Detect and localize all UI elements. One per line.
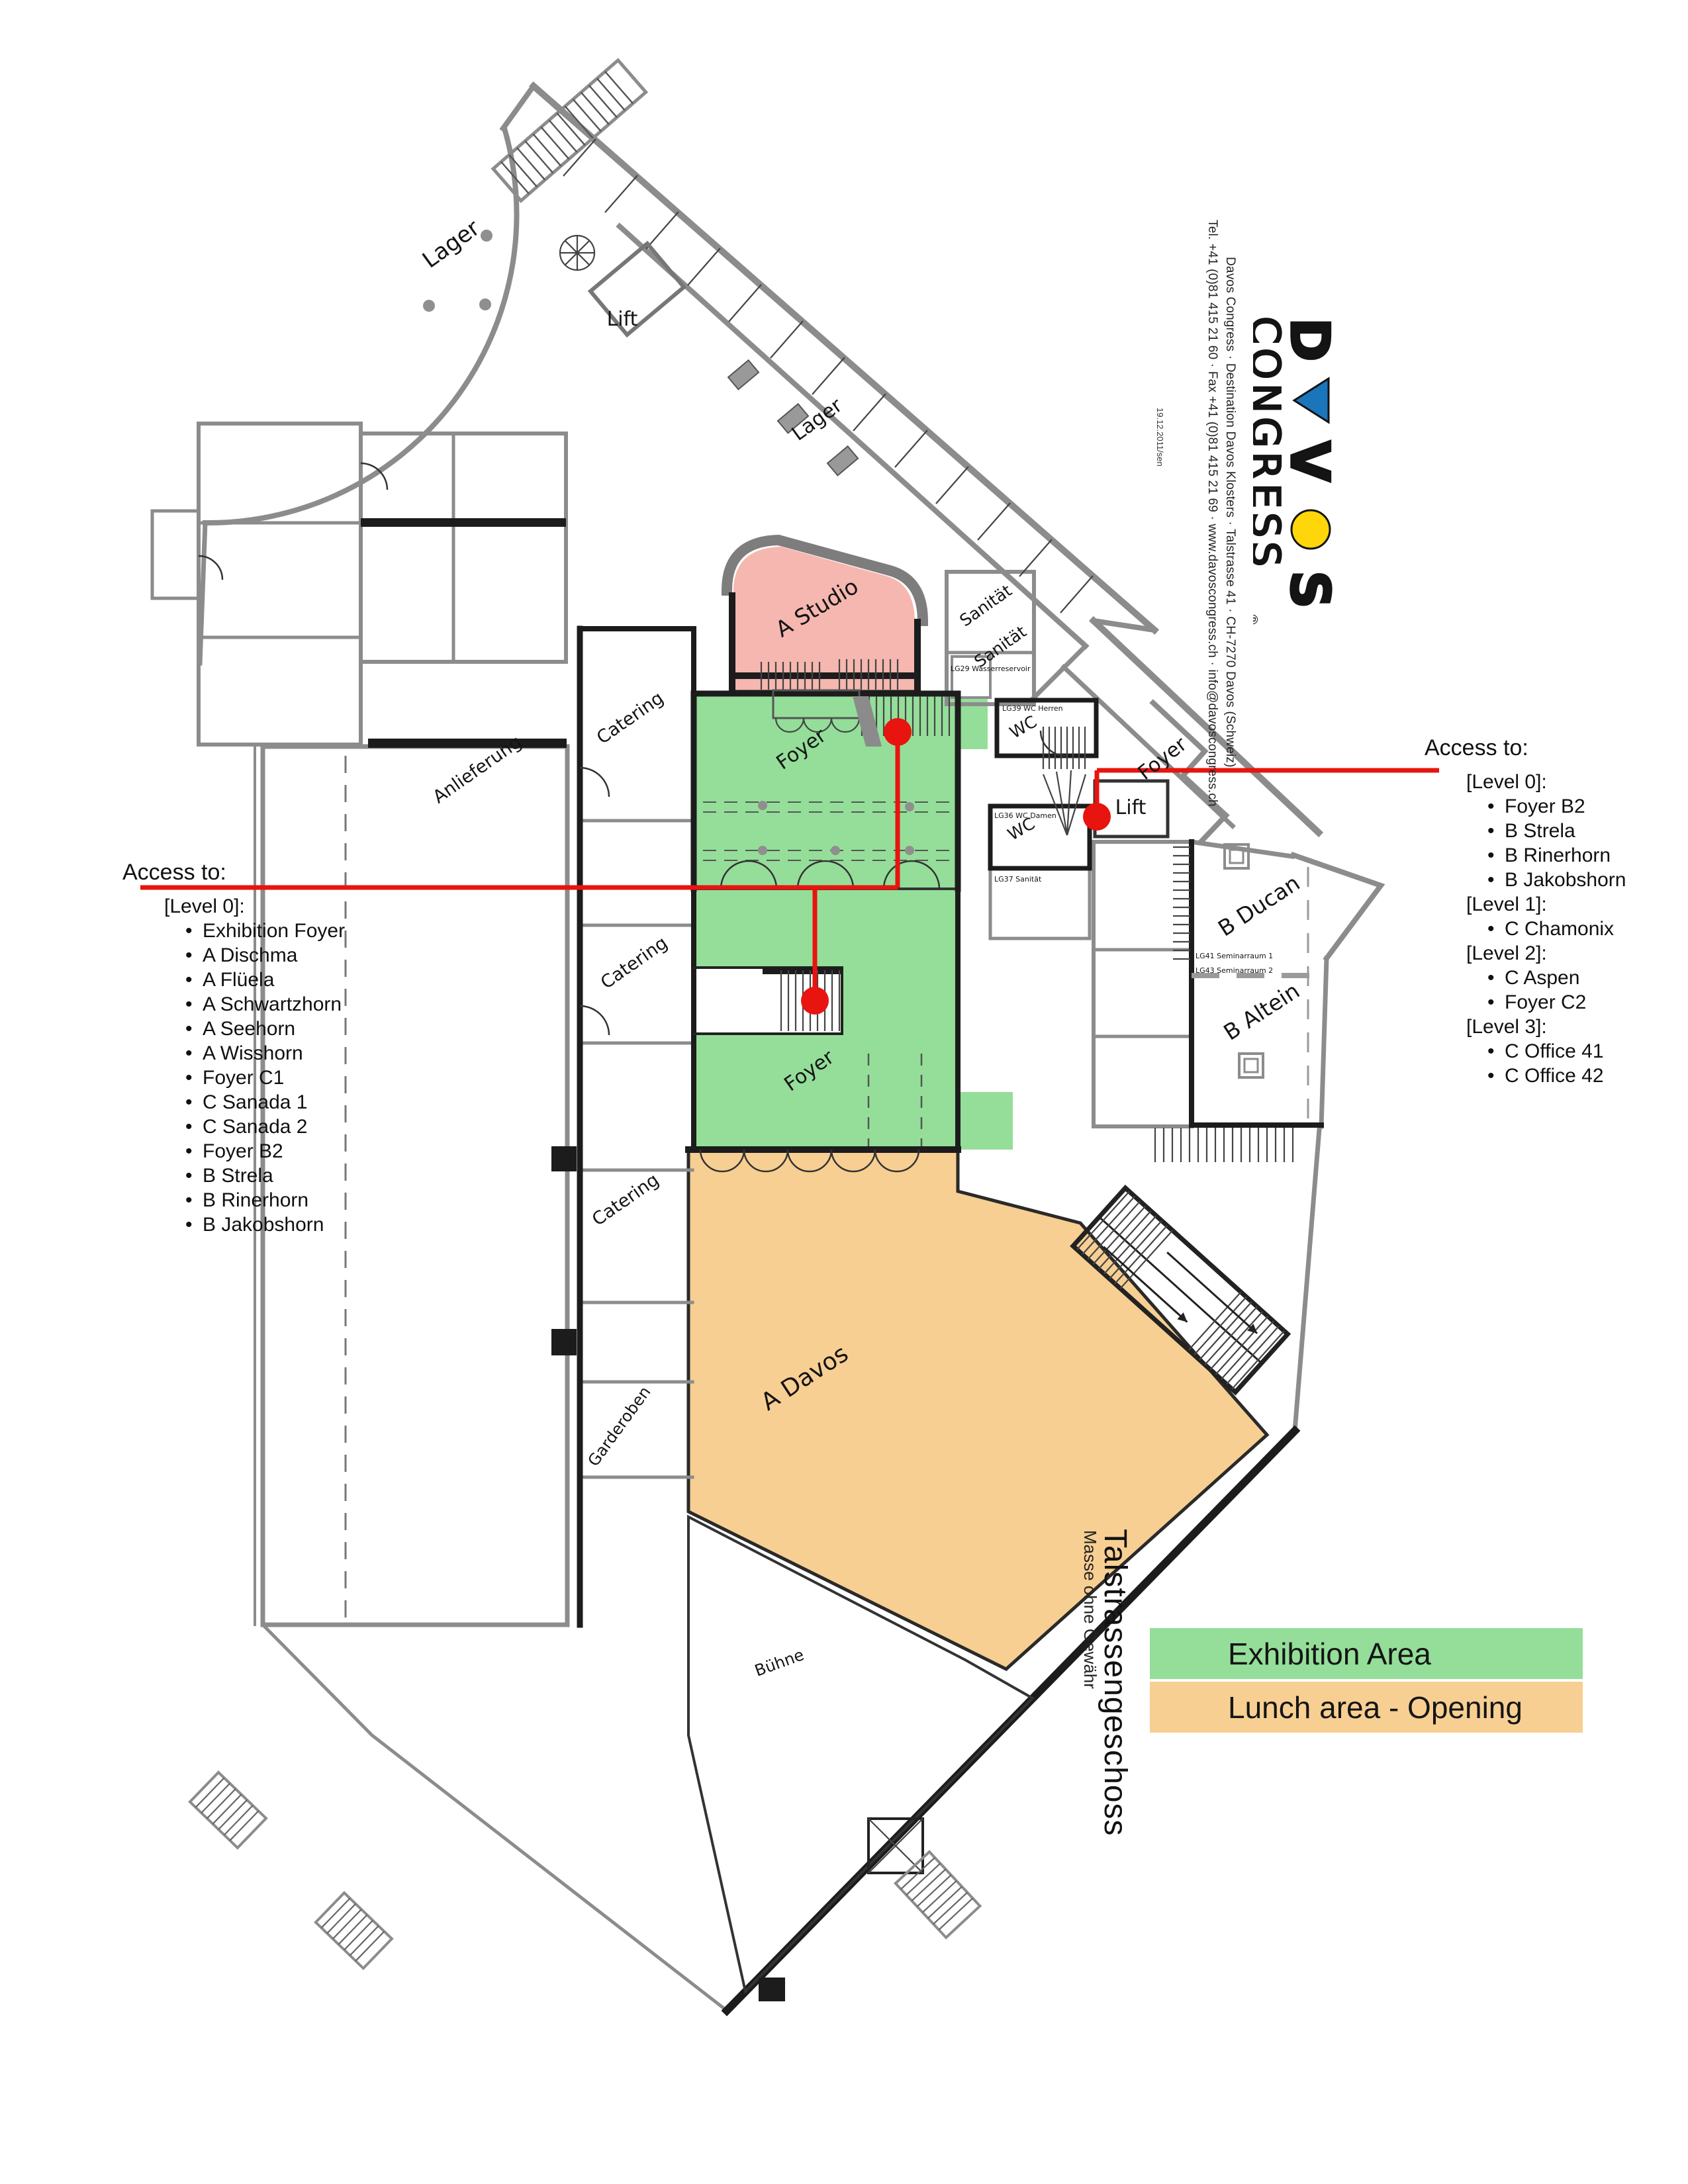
bullet-icon: • [185, 1212, 203, 1237]
bullet-icon: • [185, 1139, 203, 1163]
access-item: •A Dischma [185, 943, 400, 968]
label-lager-top: Lager [418, 215, 485, 274]
access-item-label: C Aspen [1505, 967, 1579, 989]
access-item-label: B Strela [203, 1165, 273, 1187]
access-item: •Foyer B2 [185, 1139, 400, 1163]
micro-label: LG39 WC Herren [1002, 704, 1063, 713]
bullet-icon: • [1487, 819, 1505, 843]
access-item-label: B Jakobshorn [203, 1214, 324, 1236]
bullet-icon: • [1487, 868, 1505, 892]
access-item-label: C Chamonix [1505, 918, 1614, 940]
bullet-icon: • [185, 1163, 203, 1188]
access-item: •Foyer C1 [185, 1066, 400, 1090]
bullet-icon: • [185, 1017, 203, 1041]
davos-congress-logo: D V S CONGRESS ® [1253, 316, 1333, 627]
access-item-label: Exhibition Foyer [203, 920, 345, 942]
access-item-label: A Dischma [203, 944, 297, 966]
stair-bank-top [493, 60, 646, 201]
access-item-label: C Sanada 1 [203, 1091, 307, 1113]
access-item: •B Jakobshorn [185, 1212, 400, 1237]
access-item: •B Strela [1487, 819, 1676, 843]
access-marker-lift [1083, 803, 1111, 831]
access-list-right: Access to: [Level 0]:•Foyer B2•B Strela•… [1425, 736, 1676, 1088]
access-item-label: A Schwartzhorn [203, 993, 342, 1015]
bullet-icon: • [1487, 794, 1505, 819]
legend: Exhibition AreaLunch area - Opening [1150, 1628, 1583, 1735]
legend-item-label: Exhibition Area [1150, 1636, 1431, 1672]
label-buehne: Bühne [752, 1645, 806, 1680]
bullet-icon: • [1487, 843, 1505, 868]
bullet-icon: • [185, 1066, 203, 1090]
logo-blue-triangle [1294, 379, 1329, 422]
access-item: •A Seehorn [185, 1017, 400, 1041]
access-item: •B Strela [185, 1163, 400, 1188]
label-b-altein: B Altein [1219, 978, 1304, 1046]
access-item-label: B Jakobshorn [1505, 869, 1626, 891]
bullet-icon: • [185, 1188, 203, 1212]
access-item: •Exhibition Foyer [185, 919, 400, 943]
bullet-icon: • [185, 1115, 203, 1139]
bullet-icon: • [185, 1041, 203, 1066]
access-item: •B Jakobshorn [1487, 868, 1676, 892]
access-item: •C Sanada 2 [185, 1115, 400, 1139]
zone-exhibition-lower-right [958, 1092, 1013, 1150]
access-item-label: Foyer C2 [1505, 991, 1586, 1013]
bullet-icon: • [1487, 917, 1505, 941]
legend-item: Lunch area - Opening [1150, 1682, 1583, 1733]
access-list-right-title: Access to: [1425, 736, 1676, 760]
legend-item-label: Lunch area - Opening [1150, 1690, 1523, 1725]
floor-plan-page: Lager Lift Lager A Studio Sanität Sanitä… [0, 0, 1688, 2184]
access-item-label: Foyer C1 [203, 1067, 284, 1089]
access-item-label: B Rinerhorn [203, 1189, 308, 1211]
access-item: •C Office 42 [1487, 1064, 1676, 1088]
access-item: •C Chamonix [1487, 917, 1676, 941]
access-item-label: Foyer B2 [203, 1140, 283, 1162]
logo-registered-mark: ® [1253, 613, 1260, 626]
contact-phone-line: Tel. +41 (0)81 415 21 60 · Fax +41 (0)81… [1205, 220, 1219, 807]
access-item-label: B Strela [1505, 820, 1575, 842]
bullet-icon: • [185, 992, 203, 1017]
logo-yellow-circle [1291, 510, 1330, 549]
access-item: •A Wisshorn [185, 1041, 400, 1066]
access-item: •C Office 41 [1487, 1039, 1676, 1064]
label-lift-right: Lift [1115, 796, 1147, 819]
access-marker-foyer-stairs [801, 987, 829, 1015]
access-list-right-items: [Level 0]:•Foyer B2•B Strela•B Rinerhorn… [1425, 770, 1676, 1088]
micro-label: LG36 WC Damen [994, 811, 1056, 820]
bullet-icon: • [185, 943, 203, 968]
bullet-icon: • [1487, 990, 1505, 1015]
bullet-icon: • [1487, 966, 1505, 990]
bullet-icon: • [185, 968, 203, 992]
access-item-label: Foyer B2 [1505, 796, 1585, 817]
micro-label: LG37 Sanität [994, 875, 1042, 884]
access-item: •Foyer B2 [1487, 794, 1676, 819]
access-level-heading: [Level 1]: [1466, 892, 1676, 917]
access-item-label: A Seehorn [203, 1018, 295, 1040]
access-item-label: C Sanada 2 [203, 1116, 307, 1138]
logo-word-congress: CONGRESS [1253, 316, 1288, 570]
zone-fills [688, 547, 1267, 1669]
access-item: •A Schwartzhorn [185, 992, 400, 1017]
label-sanitaet-1: Sanität [956, 581, 1015, 631]
access-item: •C Sanada 1 [185, 1090, 400, 1115]
micro-label: LG43 Seminarraum 2 [1196, 966, 1273, 975]
access-item: •B Rinerhorn [185, 1188, 400, 1212]
access-level-heading: [Level 2]: [1466, 941, 1676, 966]
bullet-icon: • [1487, 1039, 1505, 1064]
level-subtitle-vertical: Masse ohne Gewähr [1080, 1530, 1100, 1689]
access-item-label: C Office 41 [1505, 1040, 1604, 1062]
access-list-left: Access to: [Level 0]:•Exhibition Foyer•A… [122, 860, 400, 1237]
access-list-left-title: Access to: [122, 860, 400, 885]
label-catering-2: Catering [597, 933, 671, 993]
stairs-bottom-left-1 [190, 1772, 266, 1848]
access-item-label: A Flüela [203, 969, 274, 991]
access-item: •B Rinerhorn [1487, 843, 1676, 868]
label-catering-1: Catering [593, 688, 667, 749]
bullet-icon: • [185, 919, 203, 943]
label-garderoben: Garderoben [584, 1383, 654, 1470]
access-level-heading: [Level 0]: [1466, 770, 1676, 794]
label-wc-1: WC [1006, 712, 1040, 743]
legend-item: Exhibition Area [1150, 1628, 1583, 1679]
contact-address-line: Davos Congress · Destination Davos Klost… [1223, 257, 1237, 768]
micro-label: LG29 Wasserreservoir [951, 664, 1031, 673]
label-b-ducan: B Ducan [1213, 870, 1305, 941]
access-item-label: A Wisshorn [203, 1042, 303, 1064]
access-item-label: B Rinerhorn [1505, 844, 1611, 866]
zone-exhibition-upper [694, 694, 958, 889]
stairs-below-buehne [896, 1852, 980, 1938]
logo-letter-s: S [1279, 570, 1333, 609]
access-marker-foyer-top [884, 718, 912, 746]
access-item-label: C Office 42 [1505, 1065, 1604, 1087]
bullet-icon: • [1487, 1064, 1505, 1088]
access-list-left-items: [Level 0]:•Exhibition Foyer•A Dischma•A … [122, 894, 400, 1237]
label-catering-3: Catering [588, 1169, 663, 1230]
date-note: 19.12.2011/sen [1155, 408, 1165, 467]
level-title-vertical: Talstrassengeschoss [1097, 1529, 1133, 1837]
access-item: •C Aspen [1487, 966, 1676, 990]
bullet-icon: • [185, 1090, 203, 1115]
access-item: •Foyer C2 [1487, 990, 1676, 1015]
stairs-bottom-left-2 [316, 1893, 392, 1968]
access-level-heading: [Level 3]: [1466, 1015, 1676, 1039]
micro-label: LG41 Seminarraum 1 [1196, 952, 1273, 960]
label-lift-top: Lift [607, 308, 638, 331]
access-level-heading: [Level 0]: [164, 894, 400, 919]
access-item: •A Flüela [185, 968, 400, 992]
